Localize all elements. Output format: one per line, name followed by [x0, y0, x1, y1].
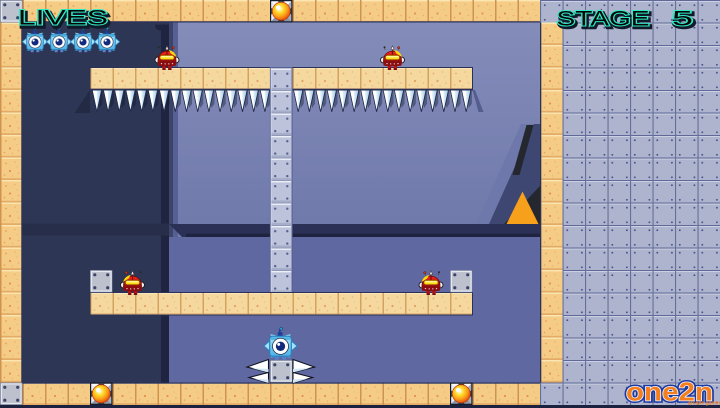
- svg-text:LIVES: LIVES: [18, 7, 108, 30]
- svg-text:STAGE: STAGE: [557, 7, 650, 30]
- svg-text:arcade games: arcade games: [688, 401, 720, 407]
- svg-text:5: 5: [672, 7, 693, 30]
